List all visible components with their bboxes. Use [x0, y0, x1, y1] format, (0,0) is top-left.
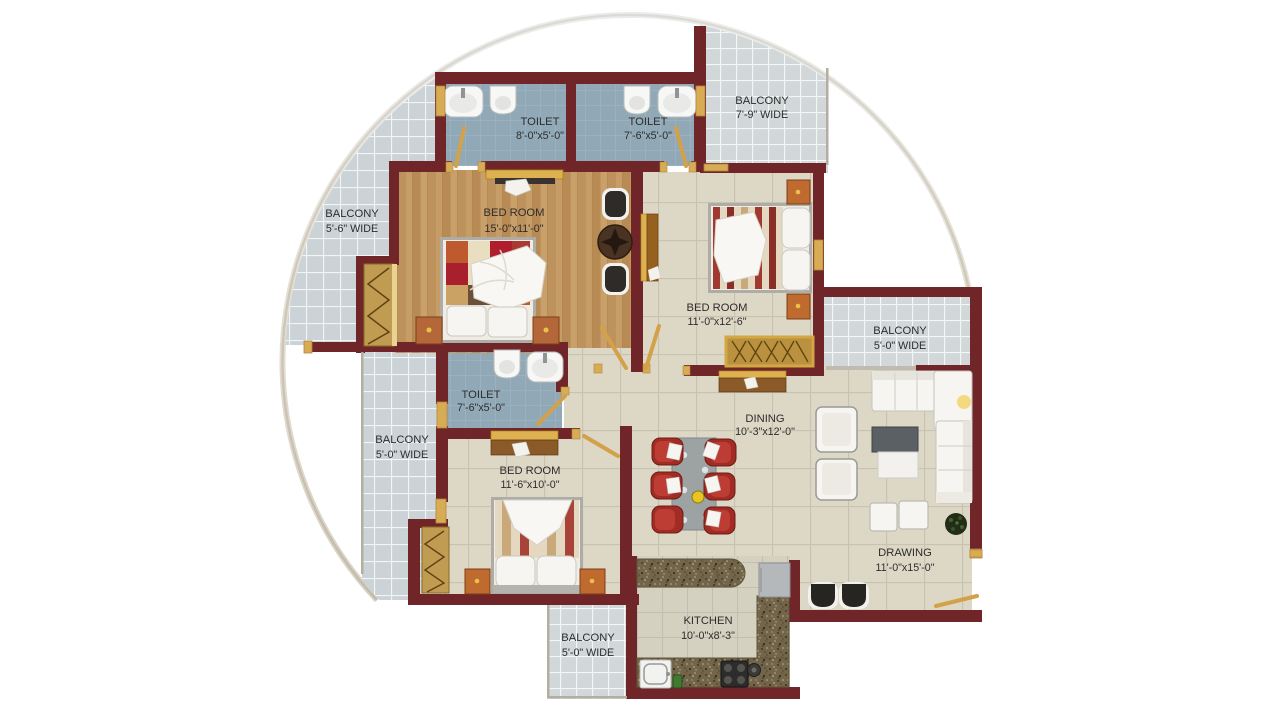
svg-text:5'-6" WIDE: 5'-6" WIDE	[326, 223, 378, 235]
svg-text:BALCONY: BALCONY	[375, 434, 429, 446]
svg-text:KITCHEN: KITCHEN	[683, 615, 732, 627]
svg-text:7'-6"x5'-0": 7'-6"x5'-0"	[624, 130, 672, 142]
svg-text:8'-0"x5'-0": 8'-0"x5'-0"	[516, 130, 564, 142]
svg-text:15'-0"x11'-0": 15'-0"x11'-0"	[485, 223, 544, 235]
svg-text:BALCONY: BALCONY	[873, 325, 927, 337]
svg-text:DINING: DINING	[745, 413, 784, 425]
svg-text:11'-0"x15'-0": 11'-0"x15'-0"	[876, 562, 935, 574]
svg-text:TOILET: TOILET	[629, 116, 668, 128]
svg-text:11'-6"x10'-0": 11'-6"x10'-0"	[501, 479, 560, 491]
svg-text:10'-3"x12'-0": 10'-3"x12'-0"	[735, 426, 795, 438]
svg-text:BALCONY: BALCONY	[561, 632, 615, 644]
svg-text:5'-0" WIDE: 5'-0" WIDE	[562, 647, 614, 659]
svg-text:BED ROOM: BED ROOM	[484, 207, 545, 219]
svg-text:7'-9" WIDE: 7'-9" WIDE	[736, 109, 788, 121]
svg-text:DRAWING: DRAWING	[878, 547, 932, 559]
svg-text:TOILET: TOILET	[521, 116, 560, 128]
svg-text:BALCONY: BALCONY	[325, 208, 379, 220]
svg-text:BALCONY: BALCONY	[735, 95, 789, 107]
svg-text:TOILET: TOILET	[462, 389, 501, 401]
svg-text:5'-0" WIDE: 5'-0" WIDE	[874, 340, 926, 352]
svg-text:7'-6"x5'-0": 7'-6"x5'-0"	[457, 402, 505, 414]
svg-text:BED ROOM: BED ROOM	[687, 302, 748, 314]
svg-text:10'-0"x8'-3": 10'-0"x8'-3"	[681, 630, 735, 642]
svg-text:BED ROOM: BED ROOM	[500, 465, 561, 477]
svg-text:11'-0"x12'-6": 11'-0"x12'-6"	[688, 316, 747, 328]
svg-text:5'-0" WIDE: 5'-0" WIDE	[376, 449, 428, 461]
